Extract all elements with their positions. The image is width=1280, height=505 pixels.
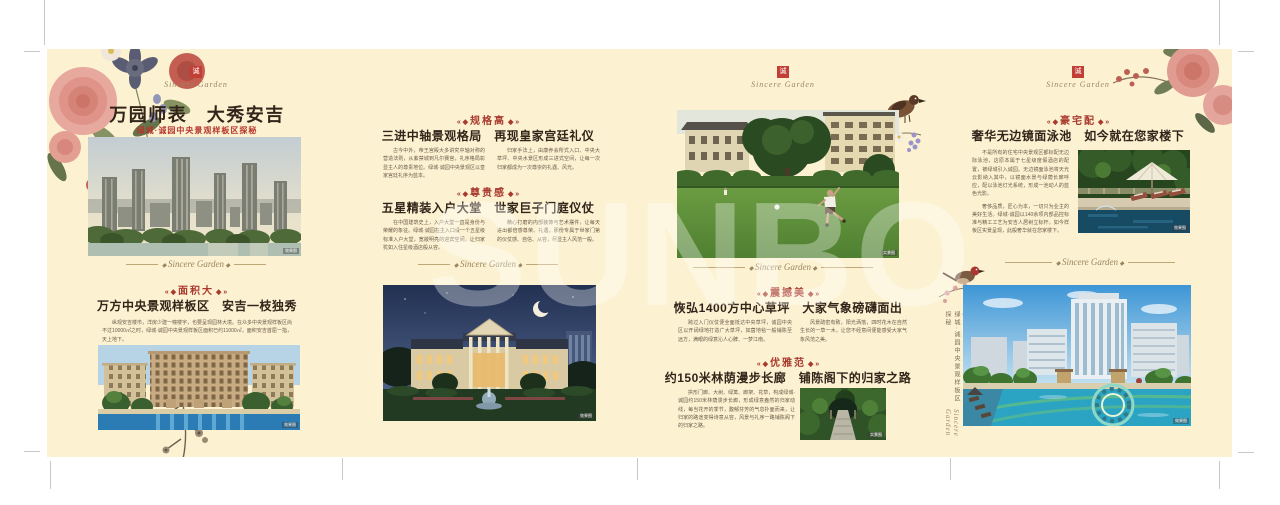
photo-caption: 实景图: [881, 250, 897, 256]
residence-pool-photo: 效果图: [98, 345, 300, 430]
photo-caption: 实景图: [868, 432, 884, 438]
body-paragraph: 奢侈品质，匠心为本，一切只为业主的美好生活。绿城·诚园以140余项内部品控标准与…: [972, 203, 1069, 236]
crop-mark: [50, 461, 51, 489]
skyline-illustration: [88, 137, 301, 256]
brand-script: Sincere Garden: [146, 80, 246, 89]
section-divider: Sincere Garden: [693, 262, 873, 272]
section-headline: 五星精装入户大堂 世家巨子门庭仪仗: [348, 199, 628, 216]
section-body-col: 古今中外，帝王宫殿大多讲究中轴对称的营造法则，从紫禁城到凡尔赛宫，礼序格局彰显主…: [383, 147, 485, 184]
grand-pool-photo: 效果图: [963, 285, 1191, 426]
crop-mark: [44, 0, 45, 45]
fold-mark: [950, 458, 951, 480]
skyline-photo: 效果图: [88, 137, 301, 256]
section-body: 纵观安吉楼市，洋房少建一幢楼宇，也要呈现园林大境。在众多中央景观样板区尚不过10…: [102, 319, 292, 348]
divider-script-label: Sincere Garden: [1056, 257, 1124, 267]
side-vertical-caption: 绿城·诚园中央景观样板区探秘 Sincere Garden 诚: [943, 311, 961, 457]
body-paragraph: 古今中外，帝王宫殿大多讲究中轴对称的营造法则，从紫禁城到凡尔赛宫，礼序格局彰显主…: [383, 147, 485, 180]
crop-mark: [1238, 452, 1254, 453]
section-body-col: 精心打磨的内部装饰与艺术摆件，让每天进出都倍感尊荣、礼遇，那份专属于世家门第的仪…: [497, 219, 600, 248]
photo-caption: 效果图: [283, 248, 299, 254]
badge-label: 面积大: [165, 286, 227, 297]
section-headline: 奢华无边镜面泳池 如今就在您家楼下: [938, 127, 1218, 144]
brochure-page: { "brand": { "seal_char": "诚", "script":…: [0, 0, 1280, 505]
infinity-pool-illustration: [1078, 150, 1190, 233]
badge-label: 规格高: [457, 116, 519, 127]
grand-pool-illustration: [963, 285, 1191, 426]
badge-label: 豪宅配: [1047, 116, 1109, 127]
crop-mark: [24, 451, 40, 452]
section-body-col: 跨过入门仪仗便全面抵达中央草坪，诚园中央区以开阔绿地打造广大草坪，如茵地毯一般铺…: [678, 319, 792, 348]
brand-script: Sincere Garden: [1028, 80, 1128, 89]
crop-mark: [1219, 461, 1220, 489]
mansion-night-photo: 效果图: [383, 285, 596, 421]
section-headline: 三进中轴景观格局 再现皇家宫廷礼仪: [348, 127, 628, 144]
section-divider: Sincere Garden: [126, 259, 266, 269]
section-body-col: 不是所有的住宅中央景观区都标配无边际泳池，这原本属于七星级度假酒店的配置，被绿城…: [972, 149, 1069, 240]
mansion-night-illustration: [383, 285, 596, 421]
side-caption-script: Sincere Garden: [944, 409, 960, 457]
section-body-col: 拱形门廊、大树、绿篱、廊架、花草，构成绿城·诚园约150米林荫漫步长廊，形成绿意…: [678, 389, 795, 434]
section-headline: 万方中央景观样板区 安吉一枝独秀: [47, 297, 347, 314]
badge-label: 震撼美: [757, 288, 819, 299]
badge-label: 优雅范: [757, 358, 819, 369]
page-title: 万园师表 大秀安吉: [47, 101, 347, 127]
brochure-sheet: 诚 Sincere Garden 万园师表 大秀安吉 绿城·诚园中央景观样板区探…: [47, 49, 1232, 457]
photo-caption: 效果图: [282, 422, 298, 428]
body-paragraph: 在中国建筑史上，入户大堂一直是身份与荣耀的象征。绿城·诚园在主入口设一个五星级标…: [383, 219, 485, 252]
infinity-pool-photo: 效果图: [1078, 150, 1190, 233]
badge-label: 尊贵感: [457, 188, 519, 199]
photo-caption: 效果图: [1172, 225, 1188, 231]
section-body-col: 归家手法上，由康养会所式入口、中央大草坪、中央水景区形成三进式空间，让每一次归家…: [497, 147, 600, 176]
body-paragraph: 跨过入门仪仗便全面抵达中央草坪，诚园中央区以开阔绿地打造广大草坪，如茵地毯一般铺…: [678, 319, 792, 344]
section-divider: Sincere Garden: [418, 259, 558, 269]
brand-seal: 诚: [777, 66, 789, 78]
crop-mark: [1219, 0, 1220, 45]
photo-caption: 效果图: [1173, 418, 1189, 424]
brand-seal: 诚: [1072, 66, 1084, 78]
side-caption-text: 绿城·诚园中央景观样板区探秘: [943, 311, 961, 406]
section-body-col: 风景疏密有致，阳光洒落，四时花木在自然生长的一草一木，让您不经意间便能感受大家气…: [800, 319, 907, 348]
section-headline: 恢弘1400方中心草坪 大家气象磅礴面出: [648, 299, 928, 316]
lawn-soccer-photo: 实景图: [677, 110, 899, 258]
section-headline: 约150米林荫漫步长廊 铺陈阁下的归家之路: [648, 369, 928, 386]
brand-script: Sincere Garden: [733, 80, 833, 89]
residence-pool-illustration: [98, 345, 300, 430]
fold-mark: [637, 458, 638, 480]
crop-mark: [24, 51, 40, 52]
brand-seal: 诚: [190, 66, 202, 78]
divider-script-label: Sincere Garden: [162, 259, 230, 269]
body-paragraph: 不是所有的住宅中央景观区都标配无边际泳池，这原本属于七星级度假酒店的配置，被绿城…: [972, 149, 1069, 199]
lawn-soccer-illustration: [677, 110, 899, 258]
body-paragraph: 拱形门廊、大树、绿篱、廊架、花草，构成绿城·诚园约150米林荫漫步长廊，形成绿意…: [678, 389, 795, 430]
walkway-photo: 实景图: [800, 388, 886, 440]
crop-mark: [1238, 51, 1254, 52]
body-paragraph: 精心打磨的内部装饰与艺术摆件，让每天进出都倍感尊荣、礼遇，那份专属于世家门第的仪…: [497, 219, 600, 244]
body-paragraph: 风景疏密有致，阳光洒落，四时花木在自然生长的一草一木，让您不经意间便能感受大家气…: [800, 319, 907, 344]
divider-script-label: Sincere Garden: [749, 262, 817, 272]
divider-script-label: Sincere Garden: [454, 259, 522, 269]
body-paragraph: 归家手法上，由康养会所式入口、中央大草坪、中央水景区形成三进式空间，让每一次归家…: [497, 147, 600, 172]
section-body-col: 在中国建筑史上，入户大堂一直是身份与荣耀的象征。绿城·诚园在主入口设一个五星级标…: [383, 219, 485, 256]
body-paragraph: 纵观安吉楼市，洋房少建一幢楼宇，也要呈现园林大境。在众多中央景观样板区尚不过10…: [102, 319, 292, 344]
photo-caption: 效果图: [578, 413, 594, 419]
fold-mark: [342, 458, 343, 480]
section-divider: Sincere Garden: [1005, 257, 1175, 267]
page-subtitle: 绿城·诚园中央景观样板区探秘: [47, 125, 347, 136]
